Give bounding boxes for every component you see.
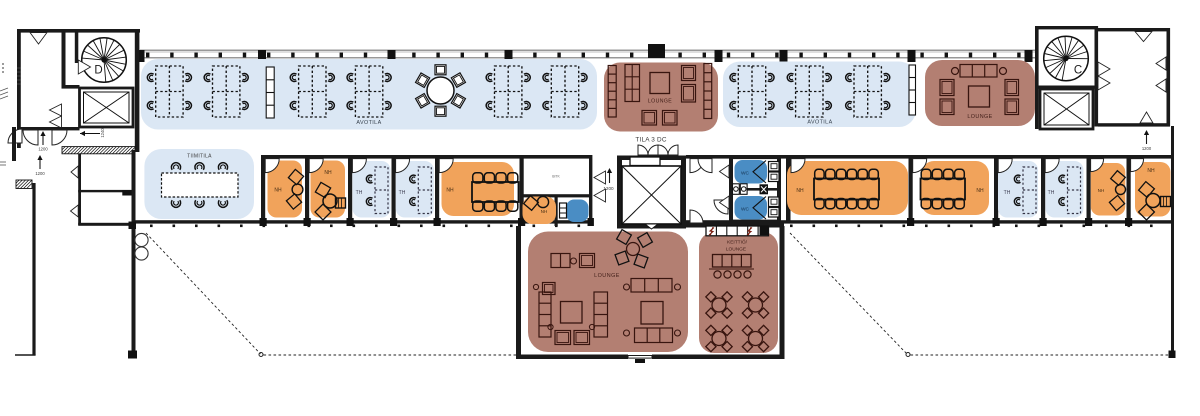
- svg-text:KEITTIÖ/: KEITTIÖ/: [727, 239, 748, 246]
- svg-text:WC: WC: [741, 171, 750, 177]
- svg-text:AVOTILA: AVOTILA: [356, 120, 381, 126]
- svg-text:NH: NH: [324, 170, 332, 176]
- svg-text:NH: NH: [1147, 168, 1155, 174]
- svg-text:LOUNGE: LOUNGE: [726, 247, 746, 253]
- svg-text:NH: NH: [274, 188, 282, 194]
- svg-text:LOUNGE: LOUNGE: [594, 273, 620, 279]
- svg-text:TH: TH: [356, 190, 363, 196]
- svg-text:LOUNGE: LOUNGE: [967, 114, 992, 120]
- svg-text:1200: 1200: [38, 147, 48, 152]
- svg-text:1200: 1200: [1142, 146, 1152, 151]
- svg-text:TH: TH: [1004, 190, 1011, 196]
- svg-text:C: C: [1074, 65, 1082, 77]
- svg-text:D: D: [94, 65, 102, 77]
- svg-text:BITK: BITK: [552, 175, 560, 179]
- svg-text:TIIMITILA: TIIMITILA: [187, 154, 212, 160]
- svg-text:NH: NH: [541, 209, 548, 214]
- svg-text:NH: NH: [976, 188, 984, 194]
- svg-text:TH: TH: [399, 190, 406, 196]
- svg-text:1200: 1200: [35, 171, 45, 176]
- svg-text:NH: NH: [446, 188, 454, 194]
- svg-text:WC: WC: [741, 207, 750, 213]
- svg-text:NH: NH: [1098, 188, 1105, 193]
- svg-text:AVOTILA: AVOTILA: [807, 120, 832, 126]
- svg-text:TILA 3 DC: TILA 3 DC: [635, 137, 666, 144]
- svg-text:LOUNGE: LOUNGE: [648, 99, 672, 105]
- svg-text:1200: 1200: [603, 186, 614, 191]
- svg-text:NH: NH: [796, 188, 804, 194]
- svg-text:TH: TH: [1048, 190, 1055, 196]
- svg-text:1240: 1240: [100, 128, 105, 138]
